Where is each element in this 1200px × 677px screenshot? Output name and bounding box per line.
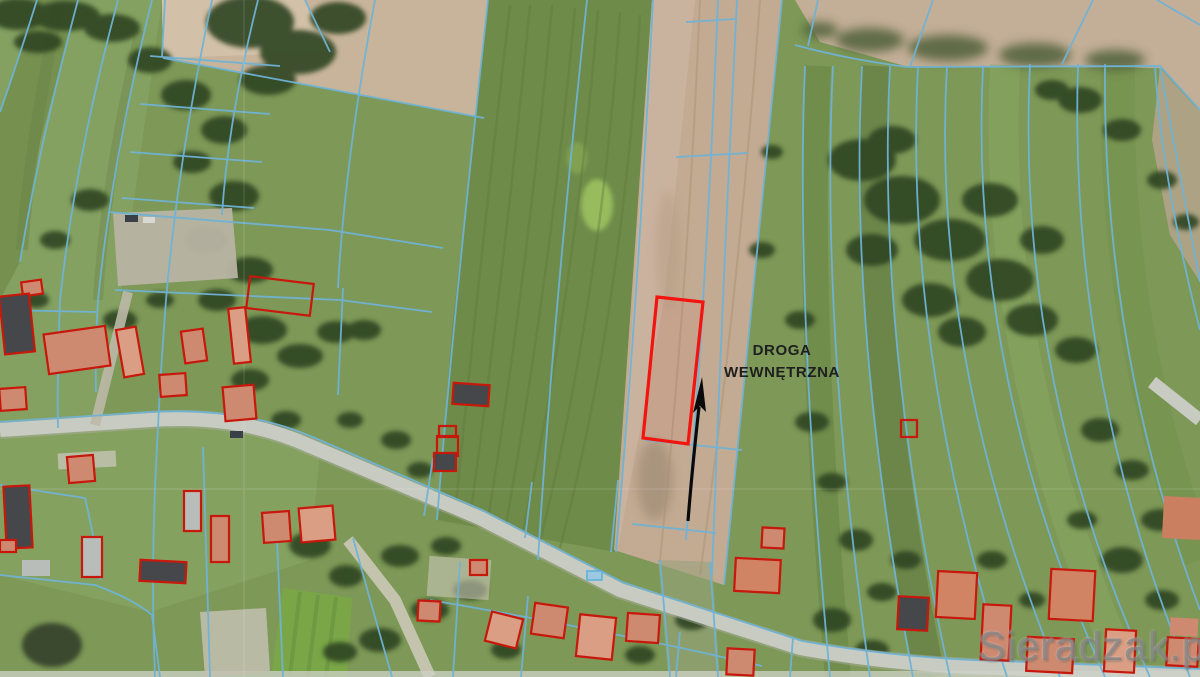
aerial-cadastral-map: DROGA WEWNĘTRZNA Sieradzak.pl <box>0 0 1200 677</box>
road-label-line2: WEWNĘTRZNA <box>722 362 842 384</box>
aerial-basemap <box>0 0 1200 677</box>
road-label: DROGA WEWNĘTRZNA <box>722 340 842 384</box>
watermark-text: Sieradzak.pl <box>978 623 1198 670</box>
road-label-line1: DROGA <box>722 340 842 362</box>
